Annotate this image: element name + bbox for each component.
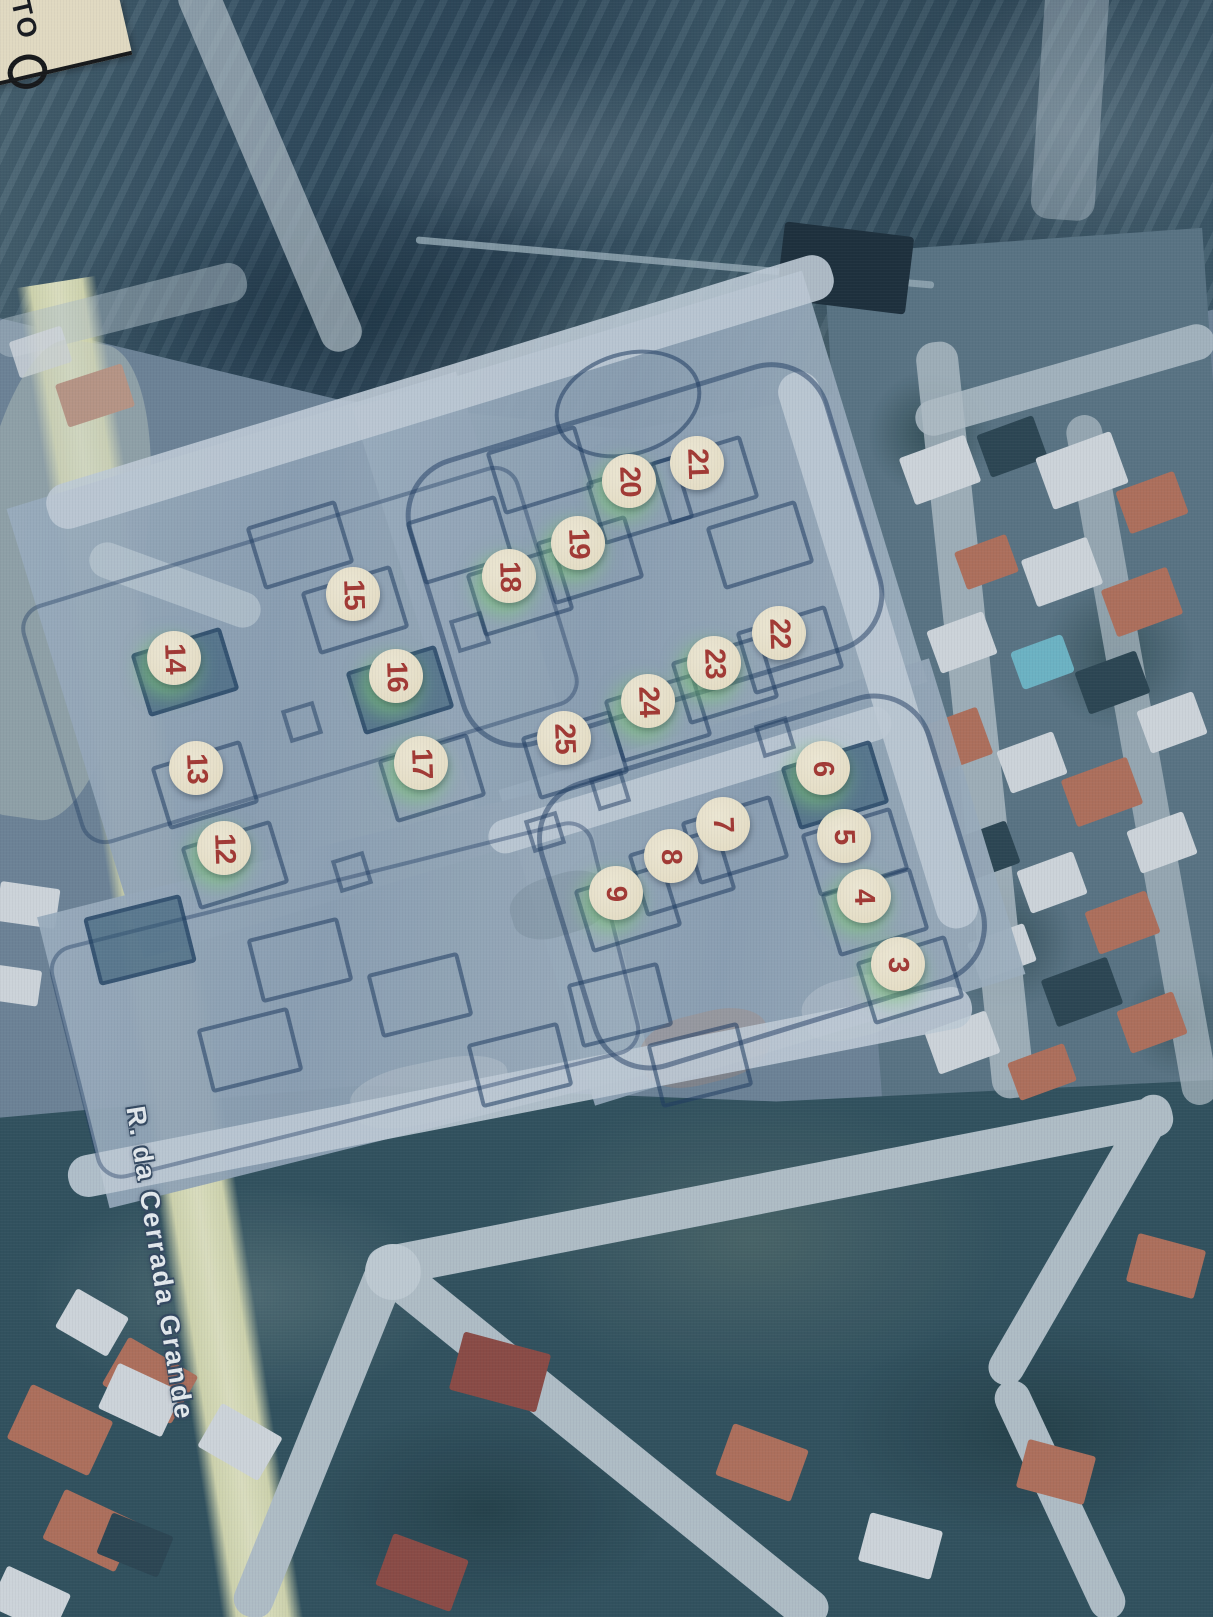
- lot-marker-number: 18: [494, 560, 524, 591]
- corner-label-text: TO: [4, 0, 43, 43]
- lot-marker-number: 7: [708, 816, 738, 832]
- lot-marker-number: 25: [549, 722, 579, 753]
- lot-marker-6: 6: [796, 741, 850, 795]
- lot-marker-16: 16: [369, 649, 423, 703]
- lot-marker-number: 12: [209, 832, 239, 863]
- lot-marker-24: 24: [621, 674, 675, 728]
- lot-marker-number: 8: [656, 848, 686, 864]
- lot-marker-number: 24: [633, 685, 663, 716]
- lot-marker-20: 20: [602, 454, 656, 508]
- lot-marker-number: 17: [406, 747, 436, 778]
- lot-marker-7: 7: [696, 797, 750, 851]
- lot-marker-number: 3: [883, 956, 913, 972]
- lot-marker-23: 23: [687, 636, 741, 690]
- lot-marker-15: 15: [326, 567, 380, 621]
- lot-marker-3: 3: [871, 937, 925, 991]
- lot-marker-number: 13: [181, 752, 211, 783]
- lot-marker-19: 19: [551, 516, 605, 570]
- lot-marker-8: 8: [644, 829, 698, 883]
- lot-marker-18: 18: [482, 549, 536, 603]
- lot-marker-5: 5: [817, 809, 871, 863]
- lot-marker-17: 17: [394, 736, 448, 790]
- lot-marker-number: 14: [159, 642, 189, 673]
- lot-marker-14: 14: [147, 631, 201, 685]
- markers-layer: 34567891213141516171819202122232425: [0, 0, 1213, 1617]
- aerial-map-photo: R. da Cerrada Grande 3456789121314151617…: [0, 0, 1213, 1617]
- lot-marker-25: 25: [537, 711, 591, 765]
- lot-marker-number: 21: [682, 447, 712, 478]
- lot-marker-number: 9: [601, 885, 631, 901]
- lot-marker-number: 19: [563, 527, 593, 558]
- lot-marker-number: 15: [338, 578, 368, 609]
- lot-marker-number: 23: [699, 647, 729, 678]
- lot-marker-number: 4: [849, 888, 879, 904]
- lot-marker-12: 12: [197, 821, 251, 875]
- lot-marker-number: 6: [808, 760, 838, 776]
- lot-marker-number: 20: [614, 465, 644, 496]
- lot-marker-21: 21: [670, 436, 724, 490]
- lot-marker-22: 22: [752, 606, 806, 660]
- lot-marker-4: 4: [837, 869, 891, 923]
- lot-marker-number: 5: [829, 828, 859, 844]
- lot-marker-9: 9: [589, 866, 643, 920]
- lot-marker-13: 13: [169, 741, 223, 795]
- lot-marker-number: 16: [381, 660, 411, 691]
- lot-marker-number: 22: [764, 617, 794, 648]
